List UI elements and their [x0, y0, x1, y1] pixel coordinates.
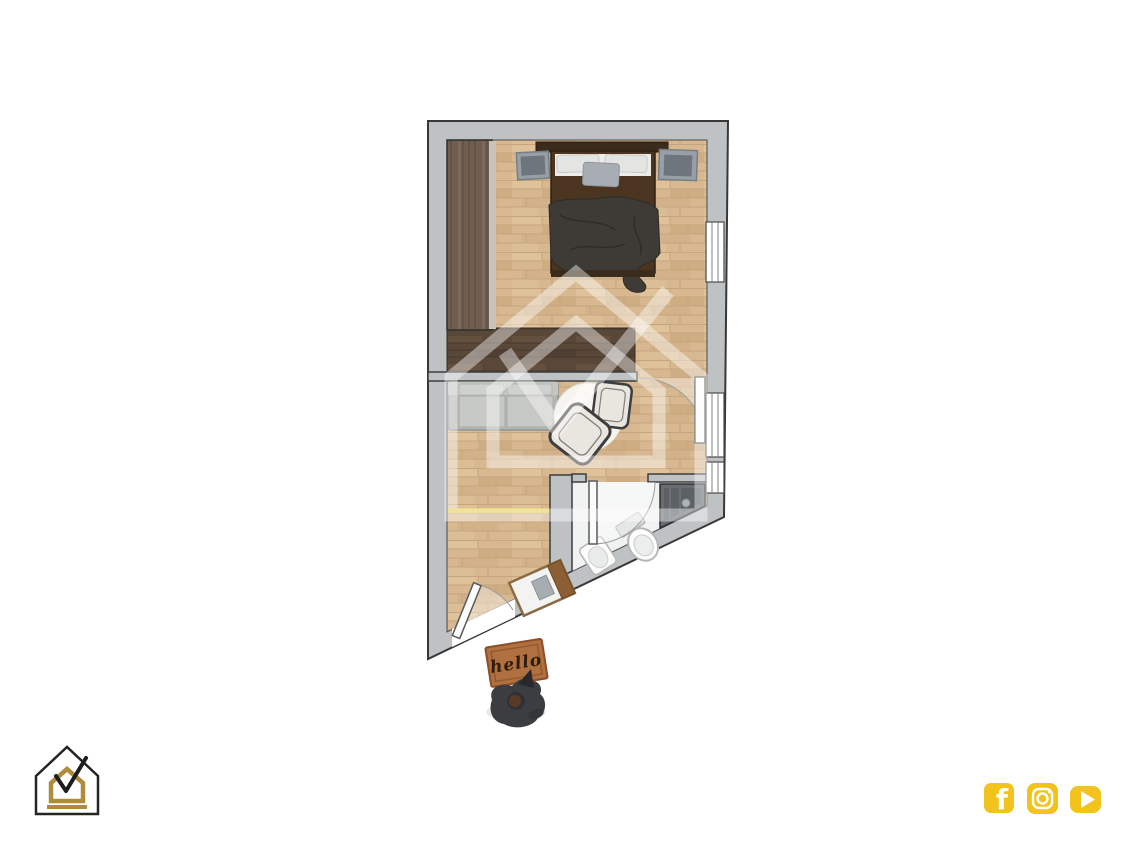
window-bedroom	[706, 222, 724, 282]
facebook-icon[interactable]: f	[984, 783, 1014, 816]
bathroom-top-wall-left	[572, 474, 586, 482]
floorplan: hello	[428, 121, 728, 727]
nightstand-left	[516, 151, 549, 180]
youtube-icon[interactable]	[1070, 786, 1101, 813]
svg-text:f: f	[996, 783, 1009, 816]
wardrobe	[447, 140, 496, 330]
nightstand-right	[658, 149, 697, 180]
floorplan-image: hello f	[0, 0, 1133, 850]
cushion	[582, 162, 619, 187]
house-checkmark-logo	[36, 747, 98, 814]
window-living	[706, 393, 724, 457]
doormat: hello	[485, 639, 548, 687]
social-icons: f	[984, 783, 1101, 816]
window-small	[706, 462, 724, 493]
instagram-icon[interactable]	[1027, 783, 1058, 814]
double-bed	[536, 142, 668, 292]
dog-snout	[509, 695, 521, 707]
